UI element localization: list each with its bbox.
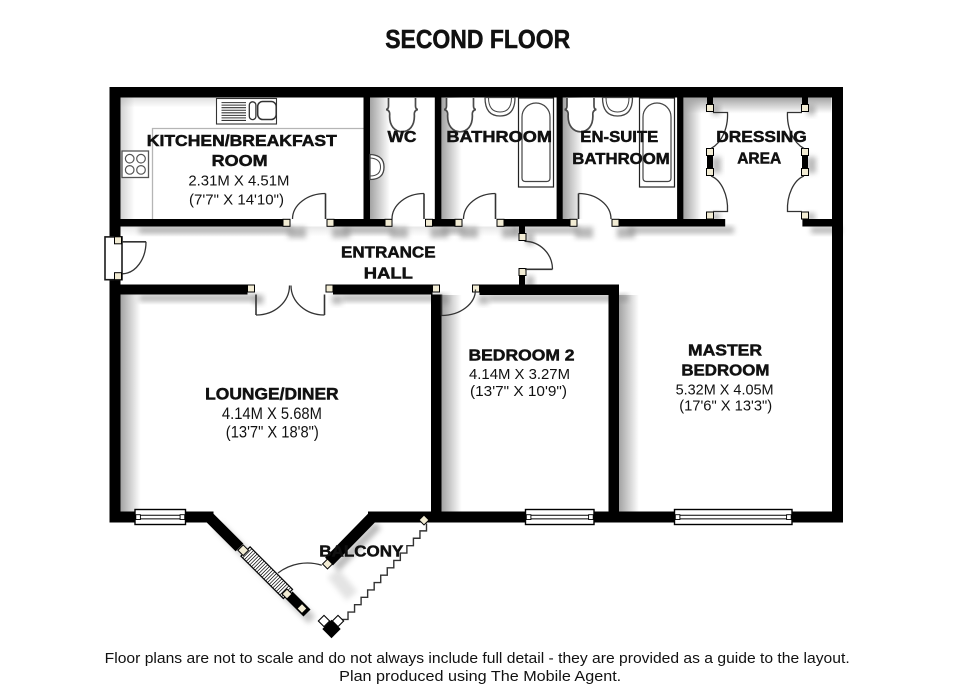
svg-text:SECOND FLOOR: SECOND FLOOR <box>385 24 570 54</box>
svg-text:4.14M X 5.68M: 4.14M X 5.68M <box>222 405 322 423</box>
svg-text:BATHROOM: BATHROOM <box>446 129 552 146</box>
svg-text:(17'6" X 13'3"): (17'6" X 13'3") <box>679 398 772 415</box>
svg-text:5.32M X 4.05M: 5.32M X 4.05M <box>676 381 774 398</box>
svg-text:ROOM: ROOM <box>212 153 268 170</box>
svg-text:Plan produced using The Mobile: Plan produced using The Mobile Agent. <box>339 668 621 685</box>
svg-text:LOUNGE/DINER: LOUNGE/DINER <box>205 385 339 404</box>
svg-text:BEDROOM: BEDROOM <box>681 362 769 379</box>
svg-text:DRESSING: DRESSING <box>716 129 807 146</box>
svg-text:BEDROOM 2: BEDROOM 2 <box>469 348 575 365</box>
svg-text:ENTRANCE: ENTRANCE <box>341 245 436 262</box>
svg-text:(7'7" X 14'10"): (7'7" X 14'10") <box>189 192 284 209</box>
svg-text:BATHROOM: BATHROOM <box>572 151 670 168</box>
svg-text:2.31M X 4.51M: 2.31M X 4.51M <box>188 173 289 190</box>
svg-text:4.14M X 3.27M: 4.14M X 3.27M <box>469 366 570 383</box>
svg-text:EN-SUITE: EN-SUITE <box>580 129 658 146</box>
svg-text:Floor plans are not to scale a: Floor plans are not to scale and do not … <box>105 650 850 667</box>
svg-text:WC: WC <box>388 129 417 146</box>
svg-text:HALL: HALL <box>364 266 413 283</box>
svg-text:KITCHEN/BREAKFAST: KITCHEN/BREAKFAST <box>147 133 337 150</box>
svg-text:AREA: AREA <box>737 151 781 168</box>
svg-text:(13'7" X 10'9"): (13'7" X 10'9") <box>470 383 567 400</box>
svg-text:MASTER: MASTER <box>688 343 762 360</box>
svg-text:BALCONY: BALCONY <box>319 544 403 561</box>
svg-text:(13'7" X 18'8"): (13'7" X 18'8") <box>226 424 319 442</box>
